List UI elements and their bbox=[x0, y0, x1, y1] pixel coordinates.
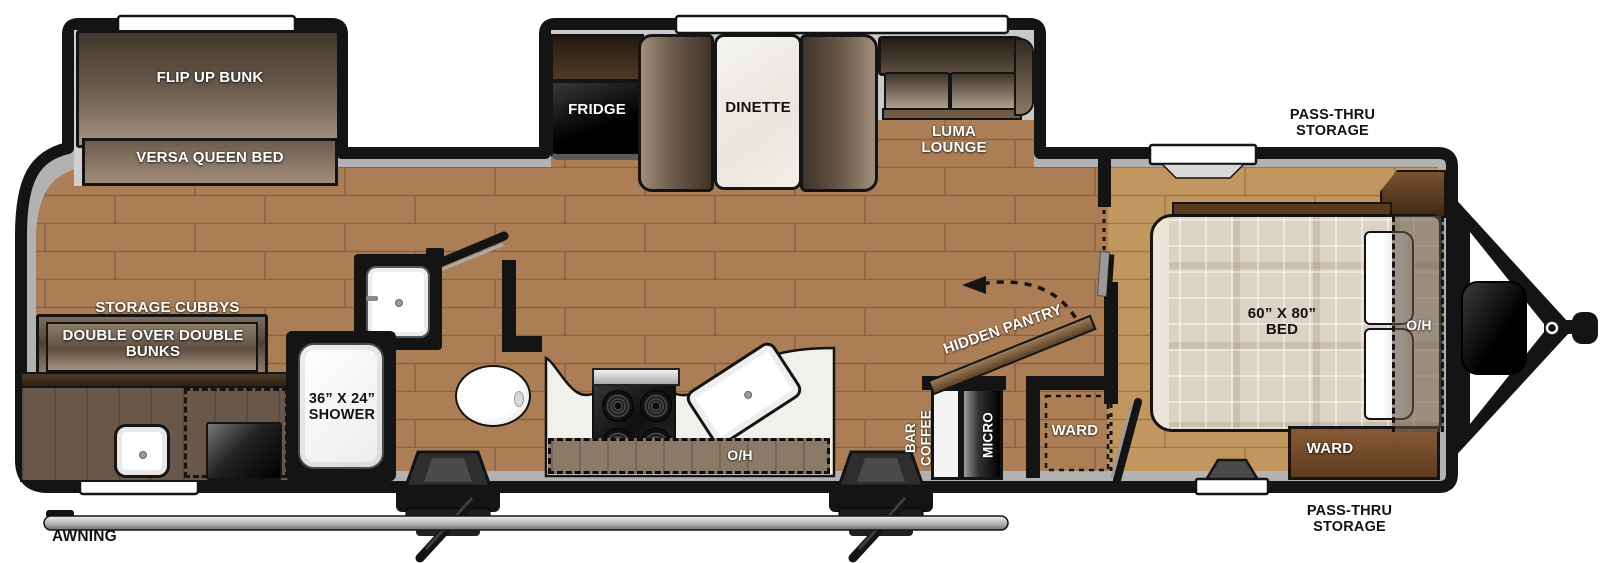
awning-label: AWNING bbox=[52, 529, 152, 546]
drain bbox=[743, 389, 754, 400]
ward-closet-label: WARD bbox=[1040, 423, 1110, 439]
luma-lounge-armrest bbox=[1014, 38, 1034, 116]
flip-up-bunk bbox=[76, 30, 340, 148]
luma-lounge-seat bbox=[884, 72, 950, 112]
coffee-bar-counter bbox=[931, 388, 961, 480]
versa-queen-bed-label: VERSA QUEEN BED bbox=[90, 150, 330, 166]
rear-appliance bbox=[206, 422, 282, 480]
dinette-bench-left bbox=[638, 34, 714, 192]
luma-lounge-back bbox=[878, 36, 1030, 76]
propane-tank bbox=[1462, 282, 1526, 374]
entry-step-main bbox=[396, 452, 500, 558]
cooktop-controls bbox=[592, 368, 680, 386]
luma-lounge-front-rail bbox=[882, 108, 1022, 120]
drain bbox=[139, 451, 147, 459]
fridge bbox=[550, 80, 644, 160]
storage-cubbys-label: STORAGE CUBBYS bbox=[95, 300, 240, 316]
bedroom-partition-lower bbox=[1104, 282, 1118, 404]
burner-icon bbox=[640, 390, 672, 422]
rear-sink bbox=[114, 424, 170, 478]
pass-thru-bottom-label: PASS-THRU STORAGE bbox=[1302, 504, 1397, 535]
burner-icon bbox=[602, 390, 634, 422]
rv-floorplan: FLIP UP BUNK VERSA QUEEN BED STORAGE CUB… bbox=[0, 0, 1600, 563]
luma-lounge-seat bbox=[950, 72, 1016, 112]
shower-label: 36” X 24” SHOWER bbox=[296, 392, 388, 423]
dinette-bench-right bbox=[800, 34, 878, 192]
luma-lounge-label: LUMA LOUNGE bbox=[914, 124, 994, 156]
drain bbox=[395, 299, 403, 307]
flush-button bbox=[514, 391, 524, 407]
bed-overhead-label: O/H bbox=[1396, 318, 1442, 333]
kitchen-overhead-label: O/H bbox=[710, 448, 770, 463]
micro-label: MICRO bbox=[966, 400, 996, 470]
pass-thru-top-label: PASS-THRU STORAGE bbox=[1285, 108, 1380, 139]
fridge-cabinet bbox=[550, 34, 644, 82]
double-bunks-label: DOUBLE OVER DOUBLE BUNKS bbox=[58, 328, 248, 360]
flip-up-bunk-label: FLIP UP BUNK bbox=[90, 70, 330, 86]
ward-wall-left bbox=[1026, 376, 1040, 478]
bath-sink bbox=[366, 266, 430, 338]
hitch-knob bbox=[1572, 312, 1598, 344]
fridge-label: FRIDGE bbox=[552, 102, 642, 118]
bedroom-partition-upper bbox=[1098, 153, 1111, 207]
coffee-bar-label: COFFEE BAR bbox=[898, 398, 934, 478]
toilet bbox=[455, 365, 531, 427]
dinette-label: DINETTE bbox=[712, 100, 804, 116]
bed-label: 60” X 80” BED bbox=[1232, 306, 1332, 338]
bedroom-ward-label: WARD bbox=[1285, 441, 1375, 457]
kitchen-overhead-cabinet bbox=[548, 438, 830, 474]
bedroom-window bbox=[1150, 145, 1256, 164]
bedroom-entry-door bbox=[1196, 479, 1268, 494]
faucet-icon bbox=[366, 296, 378, 301]
toilet-wall bbox=[502, 260, 516, 344]
kitchen-slideout-window bbox=[676, 16, 1008, 33]
hitch-assembly bbox=[1452, 195, 1598, 460]
